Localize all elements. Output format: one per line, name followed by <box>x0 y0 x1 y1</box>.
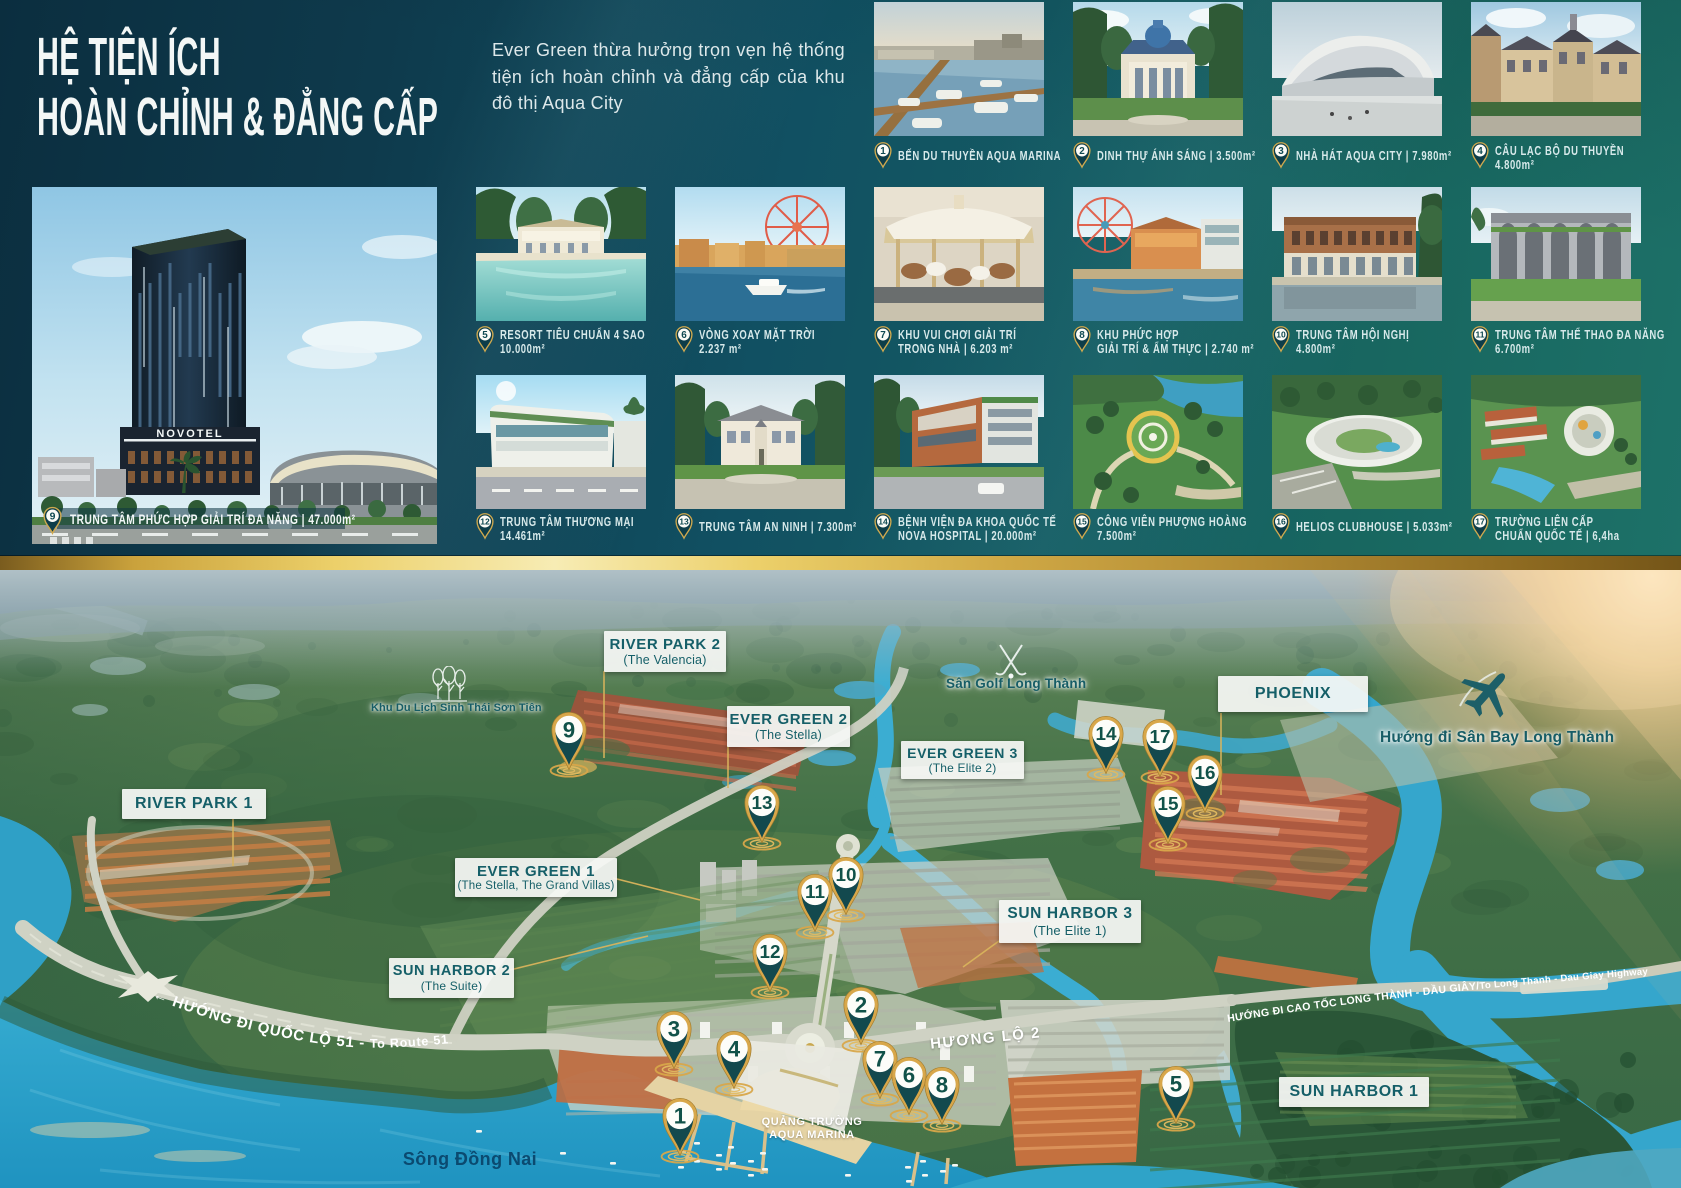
svg-text:13: 13 <box>679 517 689 527</box>
svg-text:14: 14 <box>1096 723 1117 744</box>
svg-text:2: 2 <box>855 992 867 1017</box>
svg-text:2: 2 <box>1079 146 1085 157</box>
svg-text:13: 13 <box>752 792 773 813</box>
svg-text:10: 10 <box>1276 330 1286 340</box>
svg-text:7: 7 <box>874 1046 886 1071</box>
svg-text:8: 8 <box>936 1072 948 1097</box>
svg-text:7: 7 <box>880 330 886 341</box>
svg-text:3: 3 <box>1278 146 1284 157</box>
svg-text:3: 3 <box>668 1016 680 1041</box>
svg-text:15: 15 <box>1077 517 1087 527</box>
svg-text:4: 4 <box>1477 146 1483 157</box>
svg-text:12: 12 <box>480 517 490 527</box>
svg-text:5: 5 <box>1170 1071 1182 1096</box>
svg-text:4: 4 <box>728 1036 741 1061</box>
svg-text:11: 11 <box>1475 330 1484 340</box>
svg-text:9: 9 <box>563 717 575 742</box>
svg-text:8: 8 <box>1079 330 1085 341</box>
svg-text:11: 11 <box>805 881 825 902</box>
svg-text:16: 16 <box>1195 762 1216 783</box>
svg-text:17: 17 <box>1475 517 1485 527</box>
svg-text:6: 6 <box>681 330 687 341</box>
svg-text:12: 12 <box>760 941 781 962</box>
svg-text:17: 17 <box>1150 726 1171 747</box>
svg-text:10: 10 <box>836 864 857 885</box>
svg-text:5: 5 <box>482 330 488 341</box>
svg-text:1: 1 <box>880 146 886 157</box>
svg-text:16: 16 <box>1276 517 1286 527</box>
svg-text:15: 15 <box>1158 793 1179 814</box>
svg-text:1: 1 <box>674 1103 686 1128</box>
svg-text:9: 9 <box>50 512 56 523</box>
svg-text:14: 14 <box>878 517 888 527</box>
svg-text:6: 6 <box>903 1062 915 1087</box>
